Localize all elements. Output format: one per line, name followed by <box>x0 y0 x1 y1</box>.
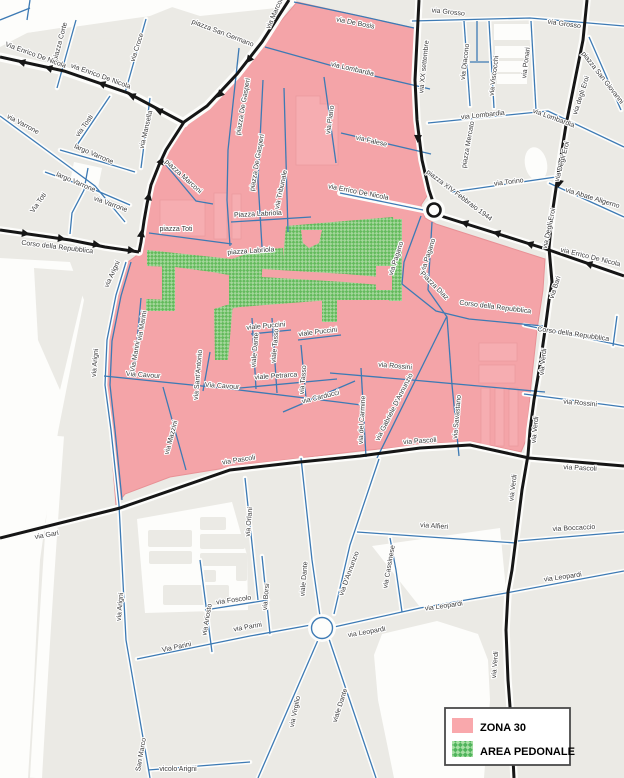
svg-text:AREA PEDONALE: AREA PEDONALE <box>480 746 575 758</box>
svg-text:ZONA 30: ZONA 30 <box>480 722 526 734</box>
svg-text:vicolo Arigni: vicolo Arigni <box>159 766 197 773</box>
svg-text:piazza Toti: piazza Toti <box>160 226 193 233</box>
